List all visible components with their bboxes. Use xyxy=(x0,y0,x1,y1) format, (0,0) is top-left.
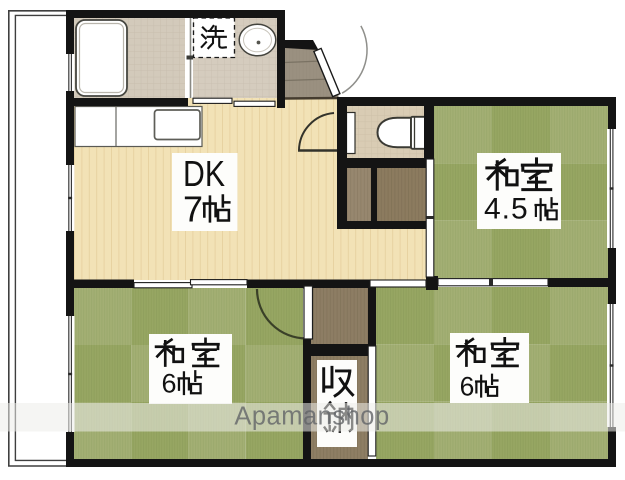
svg-text:6: 6 xyxy=(161,369,176,399)
svg-text:4.5: 4.5 xyxy=(484,193,529,226)
svg-text:Apamanshop: Apamanshop xyxy=(234,403,389,431)
svg-text:7: 7 xyxy=(183,189,203,230)
svg-text:6: 6 xyxy=(460,372,475,402)
